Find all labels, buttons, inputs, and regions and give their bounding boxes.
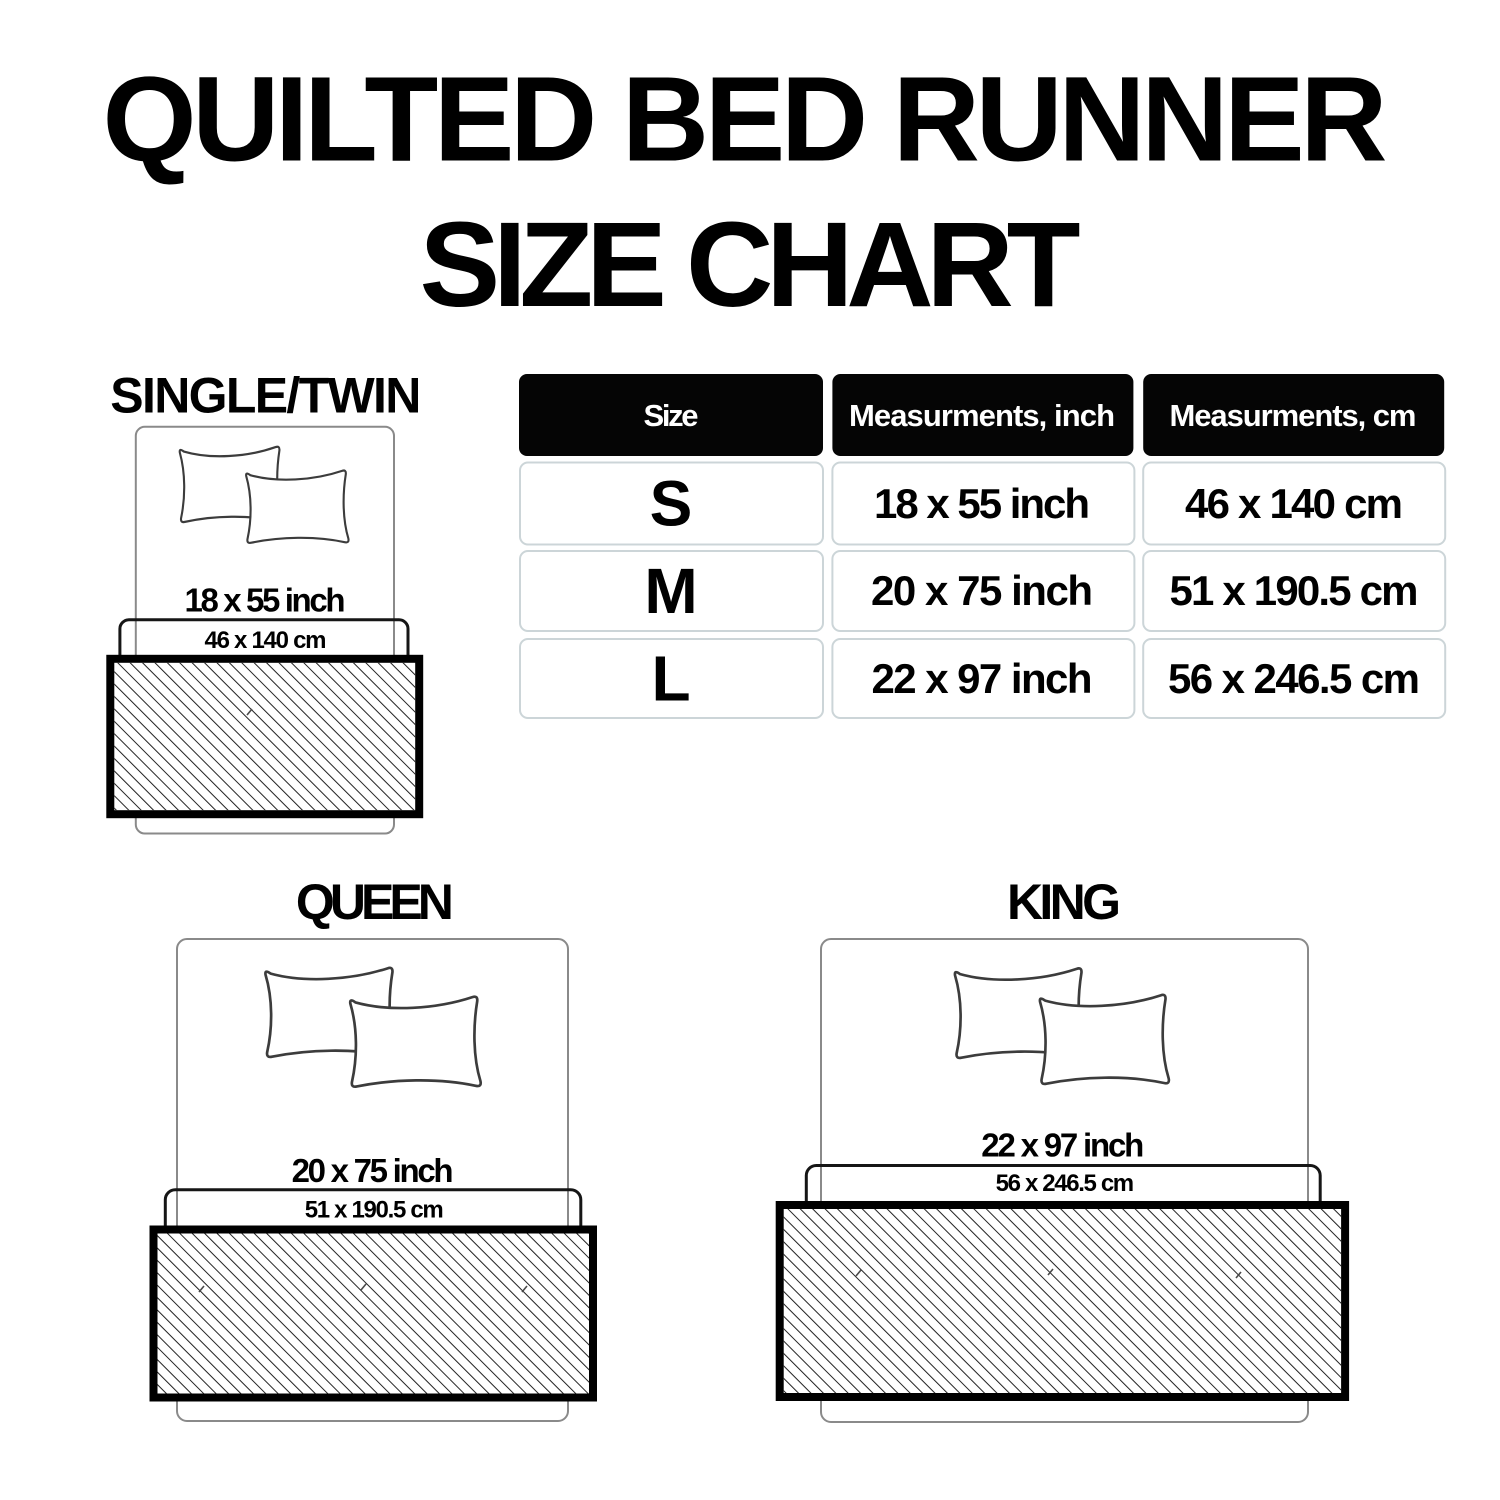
svg-text:M: M: [644, 555, 697, 627]
svg-text:KING: KING: [1007, 874, 1121, 930]
svg-text:22 x 97 inch: 22 x 97 inch: [981, 1126, 1144, 1163]
svg-text:46 x 140 cm: 46 x 140 cm: [205, 627, 327, 654]
svg-text:20 x 75 inch: 20 x 75 inch: [871, 567, 1093, 614]
svg-text:L: L: [651, 643, 690, 715]
svg-text:SINGLE/TWIN: SINGLE/TWIN: [110, 367, 421, 423]
svg-text:56 x 246.5 cm: 56 x 246.5 cm: [996, 1170, 1135, 1197]
svg-text:SIZE CHART: SIZE CHART: [420, 196, 1081, 332]
svg-text:51 x 190.5 cm: 51 x 190.5 cm: [1170, 567, 1419, 614]
svg-text:Size: Size: [644, 398, 699, 433]
svg-text:Measurments, cm: Measurments, cm: [1170, 398, 1417, 433]
svg-text:S: S: [650, 468, 693, 540]
svg-text:20 x 75 inch: 20 x 75 inch: [292, 1152, 454, 1189]
svg-text:Measurments, inch: Measurments, inch: [849, 398, 1115, 433]
svg-text:51 x 190.5 cm: 51 x 190.5 cm: [305, 1196, 444, 1223]
svg-text:22 x 97 inch: 22 x 97 inch: [872, 655, 1093, 702]
svg-text:QUEEN: QUEEN: [296, 874, 454, 930]
svg-text:QUILTED BED RUNNER: QUILTED BED RUNNER: [103, 51, 1388, 187]
svg-text:46 x 140 cm: 46 x 140 cm: [1185, 480, 1403, 527]
svg-text:18 x 55 inch: 18 x 55 inch: [185, 582, 346, 619]
svg-text:56 x 246.5 cm: 56 x 246.5 cm: [1168, 655, 1420, 702]
svg-text:18 x 55 inch: 18 x 55 inch: [874, 480, 1090, 527]
